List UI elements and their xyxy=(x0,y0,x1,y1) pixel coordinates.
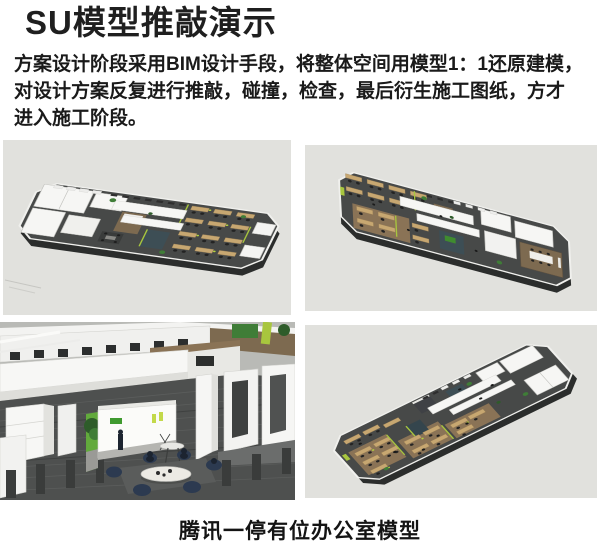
figure-interior-lobby-view xyxy=(0,322,295,500)
intro-line-3: 进入施工阶段。 xyxy=(14,105,596,132)
aerial-render-1 xyxy=(3,140,291,315)
figure-aerial-view-southeast xyxy=(305,325,597,498)
interior-render xyxy=(0,322,295,500)
aerial-render-2 xyxy=(305,145,597,311)
intro-paragraph: 方案设计阶段采用BIM设计手段，将整体空间用模型1：1还原建模， 对设计方案反复… xyxy=(14,51,596,132)
figure-aerial-view-northeast xyxy=(305,145,597,311)
page-title: SU模型推敲演示 xyxy=(25,0,277,44)
intro-line-2: 对设计方案反复进行推敲，碰撞，检查，最后衍生施工图纸，方才 xyxy=(14,78,596,105)
intro-line-1: 方案设计阶段采用BIM设计手段，将整体空间用模型1：1还原建模， xyxy=(14,51,596,78)
figure-aerial-view-northwest xyxy=(3,140,291,315)
model-caption: 腾讯一停有位办公室模型 xyxy=(0,515,600,545)
aerial-render-3 xyxy=(305,325,597,498)
